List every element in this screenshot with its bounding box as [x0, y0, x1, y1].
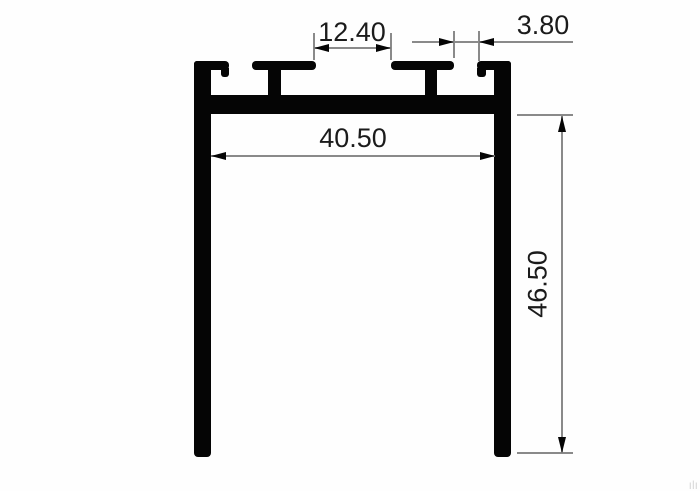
arrowhead-bottom	[558, 437, 566, 453]
dimension-line	[211, 155, 495, 157]
dimension-value-center-slot: 12.40	[318, 19, 386, 46]
extension-line-right	[478, 31, 480, 61]
dimension-line	[561, 116, 563, 453]
profile-t-slot-1-stem	[268, 68, 281, 96]
arrowhead-right	[479, 38, 494, 46]
profile-right-wall	[494, 61, 511, 457]
profile-web-plate	[194, 95, 511, 114]
arrowhead-right	[480, 152, 495, 160]
dimension-value-leg-height: 46.50	[525, 250, 552, 318]
watermark: ılı	[689, 479, 698, 491]
arrowhead-top	[558, 116, 566, 132]
profile-t-slot-1-flange	[252, 61, 316, 70]
profile-left-flange-lip	[221, 68, 229, 77]
arrowhead-left	[439, 38, 454, 46]
profile-t-slot-2-flange	[391, 61, 454, 70]
dimension-value-inner-width: 40.50	[319, 125, 387, 152]
dimension-value-side-slot: 3.80	[517, 12, 570, 39]
arrowhead-left	[211, 152, 226, 160]
profile-left-wall	[194, 61, 211, 457]
profile-right-flange-lip	[477, 68, 486, 77]
drawing-canvas: 12.40 3.80 40.50 46.50 ılı	[0, 0, 700, 491]
profile-t-slot-2-stem	[425, 68, 437, 96]
